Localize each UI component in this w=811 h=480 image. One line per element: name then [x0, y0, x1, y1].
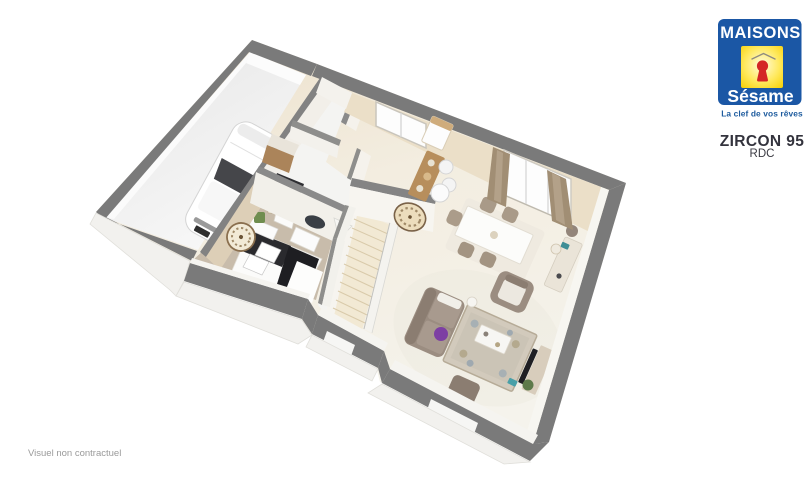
svg-text:Visuel non contractuel: Visuel non contractuel — [28, 448, 121, 459]
svg-text:RDC: RDC — [750, 148, 775, 160]
svg-text:MAISONS: MAISONS — [720, 24, 801, 42]
svg-text:La clef de vos rêves: La clef de vos rêves — [721, 109, 803, 119]
svg-text:Sésame: Sésame — [727, 86, 793, 106]
